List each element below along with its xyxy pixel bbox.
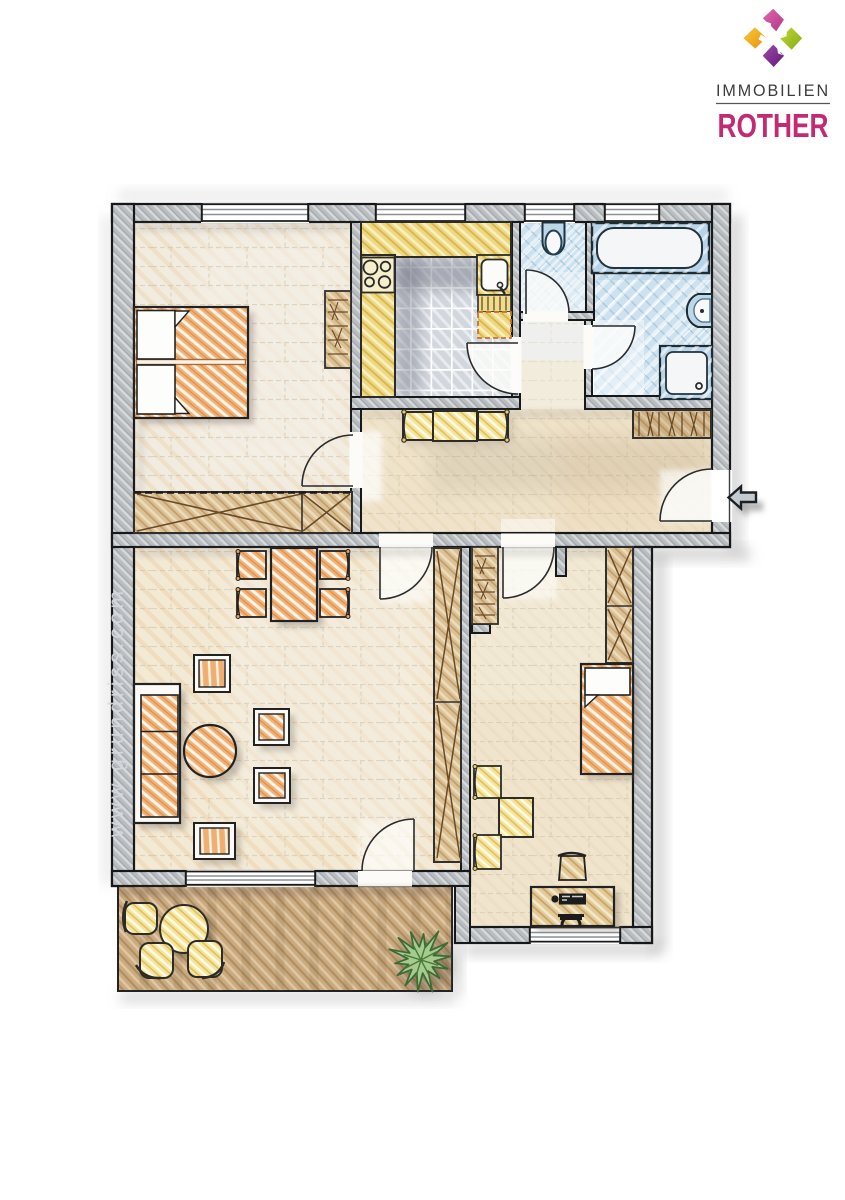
svg-text:IMMOBILIEN: IMMOBILIEN bbox=[716, 81, 830, 100]
svg-text:www.grundriss.com: www.grundriss.com bbox=[105, 587, 128, 838]
svg-text:ROTHER: ROTHER bbox=[718, 107, 829, 144]
